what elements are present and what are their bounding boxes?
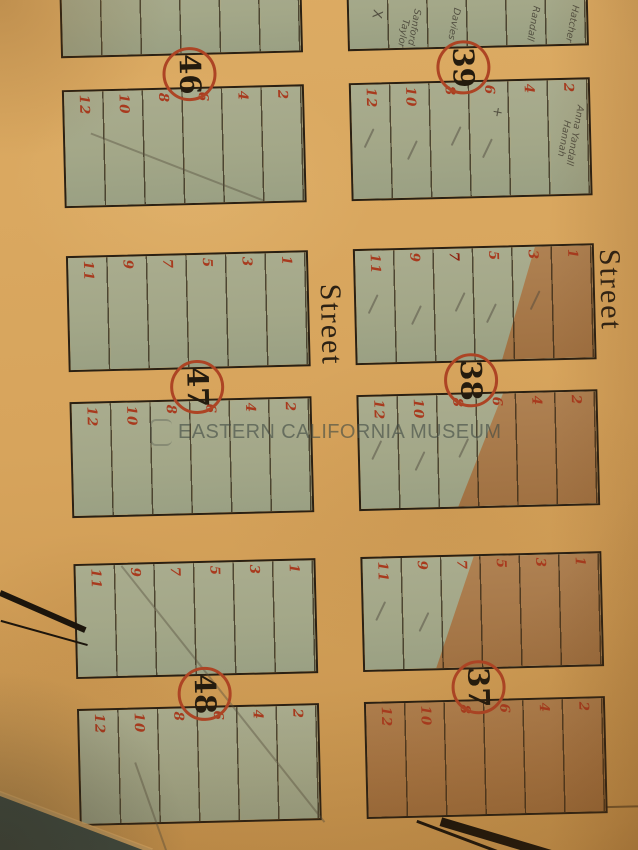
lot-marks: 1197531 bbox=[68, 252, 309, 370]
pencil-checkmark bbox=[407, 140, 418, 160]
lot-number: 3 bbox=[238, 257, 254, 268]
lot-number: 10 bbox=[115, 94, 132, 115]
pencil-note: + bbox=[489, 105, 506, 118]
pencil-checkmark bbox=[419, 612, 430, 632]
map-photo: Street Street 1210864246XSanfordTaylorDa… bbox=[0, 0, 638, 850]
lot-number: 12 bbox=[370, 399, 387, 420]
pencil-checkmark bbox=[529, 290, 540, 310]
lot-number: 9 bbox=[120, 259, 136, 270]
lot-number: 2 bbox=[289, 708, 305, 719]
lot-number: 8 bbox=[155, 93, 171, 104]
lot-number: 4 bbox=[234, 91, 250, 102]
block-number: 39 bbox=[448, 47, 478, 88]
lot-number: 9 bbox=[406, 252, 422, 263]
lot-number: 7 bbox=[167, 566, 183, 577]
lot-number: 1 bbox=[278, 256, 294, 267]
pencil-checkmark bbox=[371, 440, 382, 460]
lot-number: 3 bbox=[532, 557, 548, 568]
pencil-checkmark bbox=[363, 129, 374, 149]
pencil-checkmark bbox=[454, 292, 465, 312]
block-38-tier-upper: 1197531 bbox=[353, 243, 597, 365]
lot-number: 1 bbox=[572, 557, 588, 568]
pencil-checkmark bbox=[482, 138, 493, 158]
lot-marks: 12108642+Anna YandallHannah bbox=[351, 79, 591, 199]
lot-number: 3 bbox=[525, 250, 541, 261]
lot-marks: 12108642 bbox=[79, 705, 320, 824]
lot-number: 5 bbox=[206, 565, 222, 576]
lot-number: 4 bbox=[242, 403, 258, 414]
block-number: 38 bbox=[456, 360, 486, 401]
block-47-tier-lower: 12108642 bbox=[69, 396, 314, 518]
lot-number: 11 bbox=[80, 260, 97, 281]
lot-number: 3 bbox=[246, 564, 262, 575]
lot-number: 10 bbox=[402, 87, 419, 108]
lot-number: 10 bbox=[417, 705, 434, 726]
lot-number: 7 bbox=[453, 559, 469, 570]
lot-number: 2 bbox=[575, 701, 591, 712]
block-39-tier-lower: 12108642+Anna YandallHannah bbox=[349, 77, 593, 201]
block-48-tier-lower: 12108642 bbox=[77, 703, 322, 826]
street-edge-line bbox=[606, 805, 638, 808]
block-number: 46 bbox=[175, 54, 205, 95]
lot-number: 10 bbox=[131, 712, 148, 733]
street-label-right: Street bbox=[592, 248, 628, 331]
lot-number: 2 bbox=[282, 402, 298, 413]
lot-marks: 1197531 bbox=[362, 553, 602, 670]
lot-number: 11 bbox=[367, 253, 384, 274]
lot-number: 10 bbox=[123, 405, 140, 426]
pencil-checkmark bbox=[411, 305, 422, 325]
lot-number: 8 bbox=[170, 711, 186, 722]
lot-marks: 12108642 bbox=[366, 698, 606, 817]
lot-number: 7 bbox=[159, 258, 175, 269]
block-number-badge: 37 bbox=[450, 660, 505, 715]
block-number: 37 bbox=[463, 667, 493, 708]
lot-number: 2 bbox=[568, 395, 584, 406]
pencil-checkmark bbox=[415, 451, 426, 471]
pencil-note: Hatcher bbox=[563, 4, 581, 43]
lot-marks: 1197531 bbox=[355, 245, 595, 363]
pencil-note: Randall bbox=[524, 5, 541, 42]
block-number: 47 bbox=[182, 366, 212, 407]
lot-number: 2 bbox=[560, 83, 576, 94]
lot-marks: 12108642 bbox=[72, 398, 313, 516]
lot-number: 9 bbox=[414, 560, 430, 571]
lot-marks: 12108642 bbox=[64, 86, 305, 206]
lot-number: 6 bbox=[481, 85, 497, 96]
pencil-checkmark bbox=[486, 303, 497, 323]
lot-number: 4 bbox=[528, 396, 544, 407]
lot-number: 4 bbox=[521, 84, 537, 95]
block-37-tier-lower: 12108642 bbox=[364, 696, 608, 819]
lot-number: 5 bbox=[493, 558, 509, 569]
lot-number: 5 bbox=[485, 251, 501, 262]
pencil-checkmark bbox=[367, 294, 378, 314]
lot-number: 12 bbox=[91, 713, 108, 734]
pencil-checkmark bbox=[375, 601, 386, 621]
lot-number: 1 bbox=[286, 563, 302, 574]
lot-number: 10 bbox=[410, 398, 427, 419]
block-number: 48 bbox=[190, 673, 220, 714]
lot-marks: 12108642 bbox=[358, 391, 598, 509]
lot-number: 4 bbox=[536, 702, 552, 713]
lot-number: 12 bbox=[378, 706, 395, 727]
plat-map: Street Street 1210864246XSanfordTaylorDa… bbox=[0, 0, 638, 850]
lot-number: 2 bbox=[274, 90, 290, 101]
lot-number: 11 bbox=[87, 568, 104, 589]
pencil-checkmark bbox=[450, 127, 461, 147]
lot-number: 1 bbox=[564, 249, 580, 260]
block-46-tier-lower: 12108642 bbox=[62, 84, 307, 208]
lot-number: 12 bbox=[76, 94, 93, 115]
pencil-note: Davies bbox=[445, 7, 462, 41]
block-38-tier-lower: 12108642 bbox=[356, 389, 600, 511]
block-47-tier-upper: 1197531 bbox=[66, 250, 311, 372]
lot-number: 7 bbox=[446, 251, 462, 262]
lot-number: 5 bbox=[199, 258, 215, 269]
lot-number: 4 bbox=[250, 709, 266, 720]
lot-number: 12 bbox=[363, 87, 380, 108]
block-37-tier-upper: 1197531 bbox=[360, 551, 604, 672]
lot-number: 11 bbox=[374, 561, 391, 582]
street-label-center: Street bbox=[313, 283, 349, 366]
lot-number: 8 bbox=[163, 404, 179, 415]
lot-number: 12 bbox=[83, 406, 100, 427]
pencil-checkmark bbox=[458, 438, 469, 458]
pencil-note: X bbox=[368, 8, 384, 20]
